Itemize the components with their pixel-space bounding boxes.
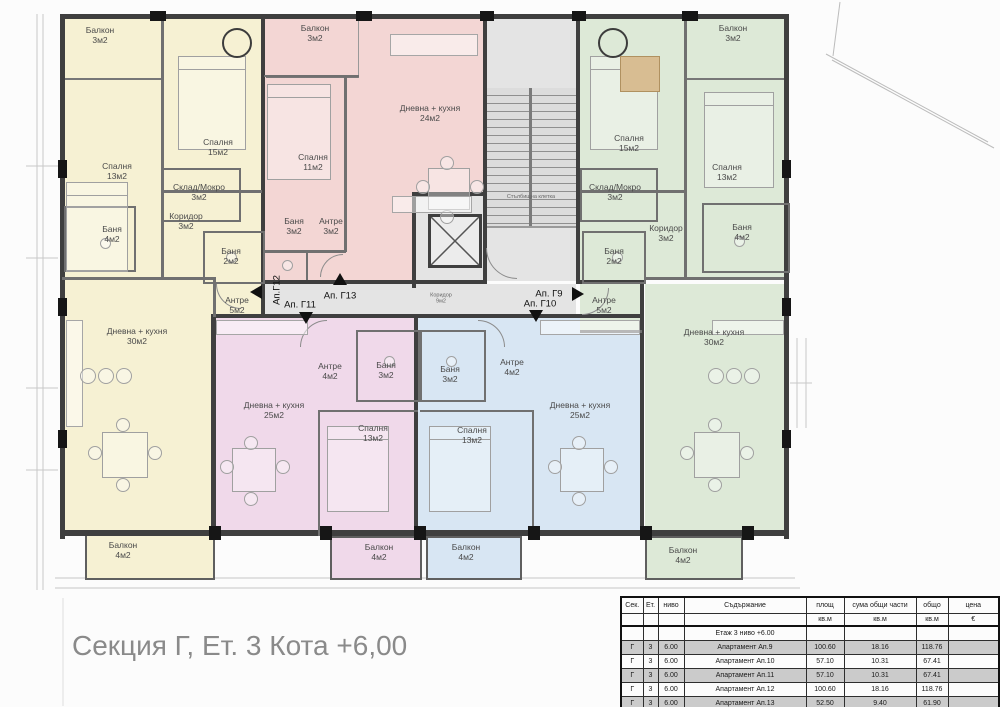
column	[320, 526, 332, 540]
table-cell	[806, 626, 844, 641]
room-label: Спалня 13м2	[358, 424, 388, 444]
room-label: Спалня 13м2	[457, 426, 487, 446]
table-cell: €	[948, 614, 999, 627]
room-label: Балкон 4м2	[669, 546, 698, 566]
table-cell	[948, 697, 999, 707]
room-label: Балкон 3м2	[301, 24, 330, 44]
table-cell: 18.16	[844, 683, 916, 697]
balcony	[85, 530, 215, 580]
chair	[220, 460, 234, 474]
room-label: Балкон 3м2	[719, 24, 748, 44]
table-header-cell: общо	[916, 597, 948, 614]
wall-segment	[211, 314, 644, 318]
table-cell: 52.50	[806, 697, 844, 707]
table-cell	[844, 626, 916, 641]
table-cell: Г	[621, 655, 643, 669]
table-cell	[948, 683, 999, 697]
stair-flight	[487, 88, 530, 228]
stair-rail	[529, 88, 532, 228]
table-header-cell: цена	[948, 597, 999, 614]
table-cell	[658, 614, 684, 627]
chair	[604, 460, 618, 474]
bar-stool	[744, 368, 760, 384]
table-cell	[658, 626, 684, 641]
bed-pillow-line	[705, 105, 773, 106]
table-cell: 6.00	[658, 669, 684, 683]
room-label: Дневна + кухня 30м2	[684, 328, 744, 348]
apartment-row: Г 3 6.00 Апартамент Ап.11 57.10 10.31 67…	[621, 669, 999, 683]
column	[209, 526, 221, 540]
chair	[708, 478, 722, 492]
table-cell: 118.76	[916, 683, 948, 697]
table-cell: 10.31	[844, 669, 916, 683]
table-cell: 57.10	[806, 669, 844, 683]
sofa	[390, 34, 478, 56]
apartment-row: Г 3 6.00 Апартамент Ап.10 57.10 10.31 67…	[621, 655, 999, 669]
table-cell: 3	[643, 641, 658, 655]
room-label: Баня 3м2	[376, 361, 396, 381]
partition-wall	[645, 277, 784, 280]
room-label: Балкон 3м2	[86, 26, 115, 46]
room-label: Дневна + кухня 25м2	[550, 401, 610, 421]
table-cell: 6.00	[658, 641, 684, 655]
table-cell: 18.16	[844, 641, 916, 655]
column	[682, 11, 698, 21]
table-cell: 67.41	[916, 669, 948, 683]
partition-wall	[161, 14, 164, 280]
room-label: Баня 2м2	[604, 247, 624, 267]
drawing-title: Секция Г, Ет. 3 Кота +6,00	[72, 630, 407, 662]
table-cell: 6.00	[658, 683, 684, 697]
entrance-arrow-right	[572, 287, 584, 301]
table-cell: 118.76	[916, 641, 948, 655]
table-cell: Г	[621, 683, 643, 697]
elevator	[428, 214, 482, 268]
table-cell	[916, 626, 948, 641]
stairwell-label: Стълбищна клетка	[507, 194, 555, 200]
table-section-row: Етаж 3 ниво +6.00	[621, 626, 999, 641]
bed-pillow-line	[67, 195, 127, 196]
chair	[116, 418, 130, 432]
dining-table	[694, 432, 740, 478]
apartment-g12-area	[65, 315, 211, 534]
partition-wall	[264, 250, 346, 253]
bar-stool	[708, 368, 724, 384]
apartment-row: Г 3 6.00 Апартамент Ап.12 100.60 18.16 1…	[621, 683, 999, 697]
bar-stool	[116, 368, 132, 384]
bar-stool	[80, 368, 96, 384]
entrance-arrow-up	[333, 273, 347, 285]
table-header-cell: площ	[806, 597, 844, 614]
room-label: Спалня 13м2	[102, 162, 132, 182]
table-cell	[643, 614, 658, 627]
table-cell: 61.90	[916, 697, 948, 707]
entrance-arrow-down	[299, 312, 313, 324]
chair	[680, 446, 694, 460]
room-label: Антре 3м2	[319, 217, 343, 237]
table-cell	[621, 626, 643, 641]
column	[782, 160, 791, 178]
chair	[88, 446, 102, 460]
table-header-cell: Сек.	[621, 597, 643, 614]
partition-wall	[62, 277, 213, 280]
table-cell	[948, 641, 999, 655]
apartment-tag-g13: Ап. Г13	[324, 291, 356, 302]
column	[528, 526, 540, 540]
chair	[572, 492, 586, 506]
kitchen-counter	[392, 196, 472, 213]
column	[58, 298, 67, 316]
entrance-arrow-left	[250, 285, 262, 299]
column	[58, 160, 67, 178]
chair	[416, 180, 430, 194]
chair	[440, 156, 454, 170]
table-header-cell: Ет.	[643, 597, 658, 614]
table-header-row: Сек. Ет. ниво Съдържание площ сума общи …	[621, 597, 999, 614]
table-header-cell: ниво	[658, 597, 684, 614]
table-cell: 57.10	[806, 655, 844, 669]
column	[480, 11, 494, 21]
chair	[244, 436, 258, 450]
dining-table	[560, 448, 604, 492]
kitchen-counter	[216, 320, 308, 335]
table-cell: Етаж 3 ниво +6.00	[684, 626, 806, 641]
dining-table	[102, 432, 148, 478]
column	[572, 11, 586, 21]
wall-segment	[261, 280, 487, 284]
wall-segment	[211, 314, 216, 536]
chair	[548, 460, 562, 474]
table-cell: кв.м	[844, 614, 916, 627]
room-label: Коридор 3м2	[169, 212, 203, 232]
wall-segment	[784, 14, 789, 539]
bed-pillow-line	[179, 69, 245, 70]
room-label: Баня 3м2	[440, 365, 460, 385]
table-cell: кв.м	[916, 614, 948, 627]
room-label: Баня 4м2	[732, 223, 752, 243]
kitchen-counter	[540, 320, 640, 335]
room-label: Балкон 4м2	[365, 543, 394, 563]
room-label: Спалня 13м2	[712, 163, 742, 183]
partition-wall	[306, 252, 308, 280]
table-cell: 10.31	[844, 655, 916, 669]
table-cell: Апартамент Ап.10	[684, 655, 806, 669]
column	[150, 11, 166, 21]
table-cell	[621, 614, 643, 627]
table-cell: 100.60	[806, 683, 844, 697]
column	[742, 526, 754, 540]
corridor-label: Коридор 9м2	[430, 293, 452, 306]
ceiling-fan-symbol	[222, 28, 252, 58]
room-label: Дневна + кухня 30м2	[107, 327, 167, 347]
entrance-arrow-down	[529, 310, 543, 322]
room-label: Дневна + кухня 25м2	[244, 401, 304, 421]
table-cell: Г	[621, 641, 643, 655]
elevator-x-icon	[431, 217, 479, 265]
chair	[276, 460, 290, 474]
chair	[572, 436, 586, 450]
table-cell: Апартамент Ап.12	[684, 683, 806, 697]
bed-pillow-line	[268, 97, 330, 98]
column	[640, 526, 652, 540]
table-cell	[948, 626, 999, 641]
room-label: Антре 5м2	[592, 296, 616, 316]
room-label: Спалня 15м2	[614, 134, 644, 154]
chair	[148, 446, 162, 460]
table-cell: 6.00	[658, 655, 684, 669]
room-label: Баня 4м2	[102, 225, 122, 245]
room-label: Спалня 11м2	[298, 153, 328, 173]
table-cell	[948, 669, 999, 683]
room-label: Баня 2м2	[221, 247, 241, 267]
ceiling-fan-symbol	[598, 28, 628, 58]
table-cell: 67.41	[916, 655, 948, 669]
chair	[740, 446, 754, 460]
room-label: Антре 4м2	[500, 358, 524, 378]
apartment-row: Г 3 6.00 Апартамент Ап.9 100.60 18.16 11…	[621, 641, 999, 655]
bed	[178, 56, 246, 150]
table-cell	[684, 614, 806, 627]
partition-wall	[684, 14, 687, 280]
table-cell: Апартамент Ап.9	[684, 641, 806, 655]
room-label: Баня 3м2	[284, 217, 304, 237]
wall-segment	[60, 14, 789, 19]
room-label: Балкон 4м2	[109, 541, 138, 561]
column	[782, 430, 791, 448]
stair-landing-line	[487, 226, 576, 228]
room-label: Дневна + кухня 24м2	[400, 104, 460, 124]
table-header-cell: Съдържание	[684, 597, 806, 614]
room-label: Склад/Мокро 3м2	[173, 183, 225, 203]
column	[58, 430, 67, 448]
table-cell: 3	[643, 655, 658, 669]
table-header-cell: сума общи части	[844, 597, 916, 614]
column	[782, 298, 791, 316]
stair-flight	[532, 88, 576, 228]
apartment-row: Г 3 6.00 Апартамент Ап.13 52.50 9.40 61.…	[621, 697, 999, 707]
partition-wall	[344, 75, 347, 252]
wall-segment	[640, 284, 644, 536]
chair	[244, 492, 258, 506]
dining-table	[232, 448, 276, 492]
column	[356, 11, 372, 21]
bar-stool	[726, 368, 742, 384]
table-cell: 9.40	[844, 697, 916, 707]
room-label: Антре 5м2	[225, 296, 249, 316]
floor-plan-sheet: Балкон 3м2 Спалня 15м2 Спалня 13м2 Склад…	[0, 0, 1000, 707]
table-cell: Апартамент Ап.13	[684, 697, 806, 707]
apartments-table: Сек. Ет. ниво Съдържание площ сума общи …	[620, 596, 1000, 707]
room-label: Коридор 3м2	[649, 224, 683, 244]
table-cell: 100.60	[806, 641, 844, 655]
table-cell: кв.м	[806, 614, 844, 627]
room-label: Склад/Мокро 3м2	[589, 183, 641, 203]
table-cell	[643, 626, 658, 641]
chair	[116, 478, 130, 492]
chair	[470, 180, 484, 194]
column	[414, 526, 426, 540]
wall-segment	[576, 14, 580, 284]
apartment-tag-g12: Ап.Г12	[272, 275, 283, 305]
apartment-tag-g11: Ап. Г11	[284, 300, 316, 311]
toilet	[282, 260, 293, 271]
table-cell: Апартамент Ап.11	[684, 669, 806, 683]
table-cell: 3	[643, 669, 658, 683]
table-cell: 3	[643, 683, 658, 697]
table-units-row: кв.м кв.м кв.м €	[621, 614, 999, 627]
table-cell: Г	[621, 697, 643, 707]
room-label: Антре 4м2	[318, 362, 342, 382]
table-cell: 3	[643, 697, 658, 707]
table-cell: Г	[621, 669, 643, 683]
apartment-tag-g10: Ап. Г10	[524, 299, 556, 310]
room-label: Спалня 15м2	[203, 138, 233, 158]
room-label: Балкон 4м2	[452, 543, 481, 563]
chair	[708, 418, 722, 432]
table-cell	[948, 655, 999, 669]
table-cell: 6.00	[658, 697, 684, 707]
bar-stool	[98, 368, 114, 384]
wardrobe	[620, 56, 660, 92]
